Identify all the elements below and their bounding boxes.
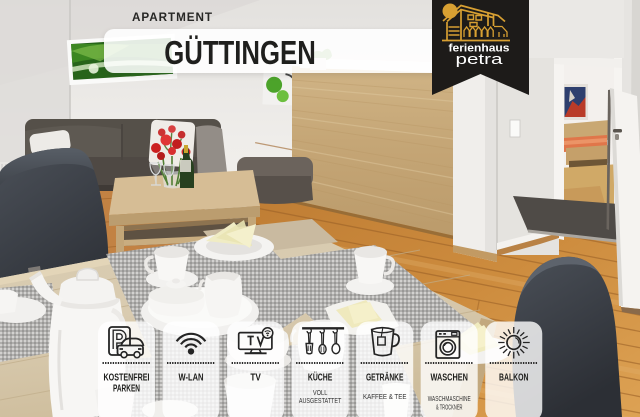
svg-text:BALKON: BALKON — [499, 373, 529, 384]
svg-text:W-LAN: W-LAN — [179, 373, 204, 384]
svg-text:KOSTENFREI: KOSTENFREI — [104, 373, 150, 384]
svg-text:WASCHEN: WASCHEN — [430, 373, 468, 384]
svg-text:& TROCKNER: & TROCKNER — [436, 402, 463, 411]
svg-text:GETRÄNKE: GETRÄNKE — [366, 371, 404, 384]
svg-text:KÜCHE: KÜCHE — [308, 371, 333, 384]
svg-text:PARKEN: PARKEN — [113, 383, 140, 394]
svg-text:AUSGESTATTET: AUSGESTATTET — [299, 396, 342, 405]
svg-text:TV: TV — [250, 373, 261, 384]
svg-text:KAFFEE & TEE: KAFFEE & TEE — [363, 392, 407, 401]
